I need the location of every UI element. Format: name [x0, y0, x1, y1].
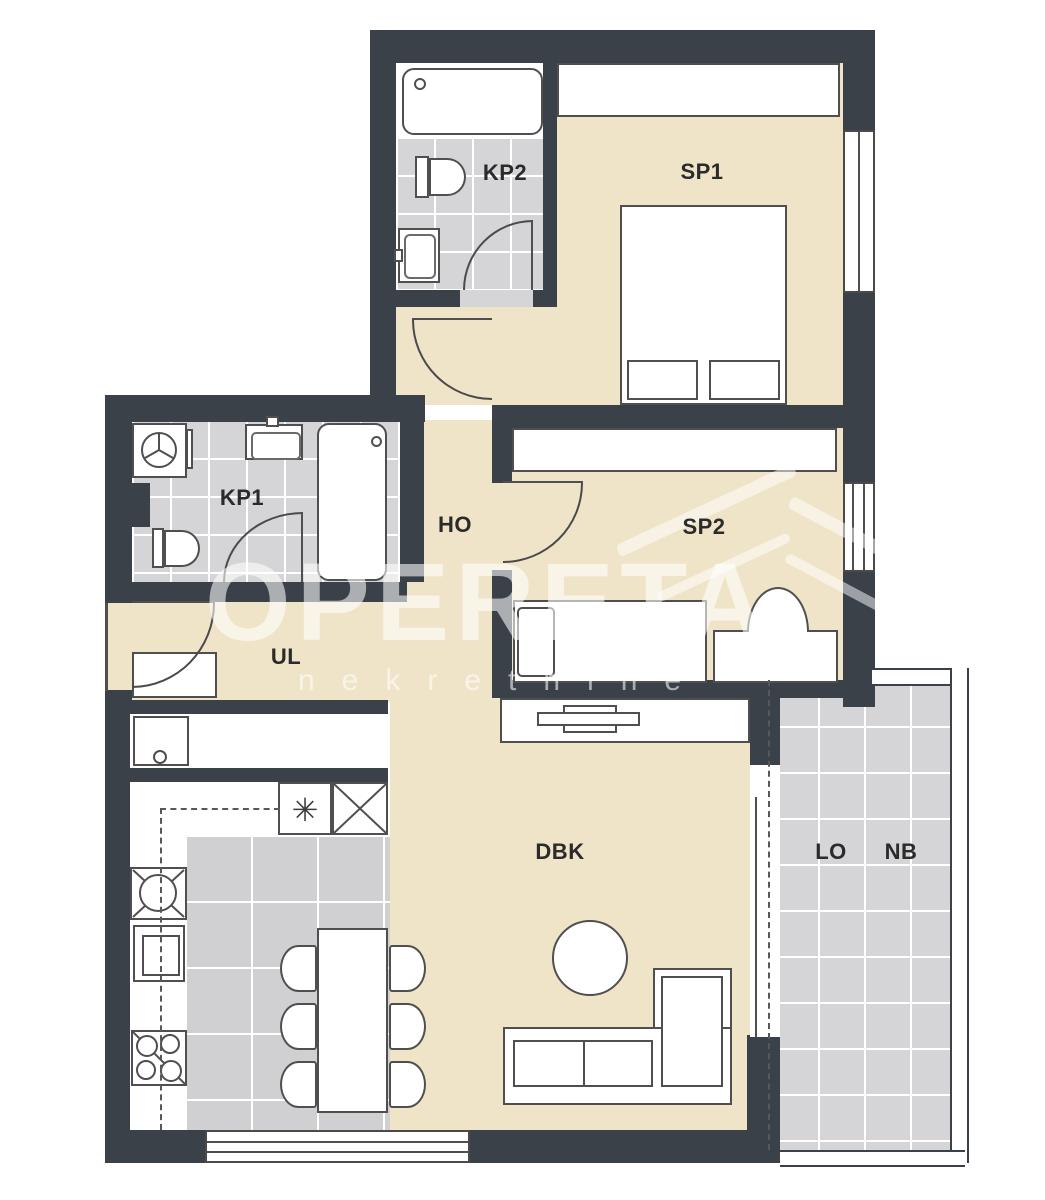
- toilet-kp1: [164, 530, 200, 567]
- burners-icon: [133, 1032, 185, 1084]
- wall-segment: [533, 290, 557, 307]
- wall-segment: [843, 420, 875, 482]
- dining-chair: [280, 1003, 317, 1050]
- oven: [133, 925, 185, 982]
- wall-segment: [843, 30, 875, 130]
- tiles-terrace: [772, 680, 950, 1150]
- window-mullion: [858, 132, 860, 291]
- coffee-table: [552, 920, 628, 996]
- window-mullion: [207, 1141, 468, 1143]
- pillow: [627, 360, 698, 400]
- door-leaf-kp2: [531, 220, 533, 290]
- kitchen-sink-unit: [130, 867, 187, 920]
- terrace-railing-bottom: [780, 1150, 965, 1167]
- floor-kp2-doorway: [460, 290, 533, 307]
- snowflake-icon: ✳: [292, 791, 319, 829]
- wall-segment: [843, 293, 875, 420]
- entrance-threshold-line: [105, 603, 108, 691]
- washer-shelf: [186, 429, 193, 469]
- dining-table: [317, 928, 388, 1113]
- wall-segment: [130, 582, 407, 602]
- door-leaf-sp2: [503, 481, 583, 483]
- wall-segment: [370, 30, 875, 63]
- drain-icon: [371, 436, 382, 447]
- window-mullion: [207, 1151, 468, 1153]
- bathtub-kp1: [317, 423, 387, 581]
- wall-balcony-jamb: [747, 1035, 780, 1163]
- wall-segment: [493, 405, 875, 428]
- dining-chair: [389, 1061, 426, 1108]
- room-label-kp2: KP2: [483, 160, 527, 186]
- toilet-tank-kp2: [415, 156, 429, 198]
- wall-segment: [396, 290, 460, 307]
- counter-outline-dashed: [160, 808, 162, 1130]
- sink-basin: [251, 432, 301, 460]
- balcony-door-leaf: [755, 797, 757, 1037]
- cooktop: [131, 1030, 187, 1086]
- washing-machine: [132, 423, 187, 478]
- room-label-ho: HO: [438, 512, 472, 538]
- floor-entrance: [107, 603, 132, 691]
- tv-icon: [537, 712, 640, 726]
- sink-kp1: [245, 424, 303, 460]
- room-label-ul: UL: [271, 644, 301, 670]
- window-sp1: [843, 130, 875, 293]
- kitchen-appliance: [133, 716, 189, 766]
- wall-segment: [105, 395, 425, 422]
- dining-chair: [389, 1003, 426, 1050]
- room-label-sp2: SP2: [682, 514, 725, 540]
- dining-chair: [280, 1061, 317, 1108]
- wall-segment: [105, 1130, 205, 1163]
- sofa-chaise-seat: [661, 976, 723, 1087]
- wall-balcony-jamb: [750, 680, 780, 765]
- wall-segment: [492, 570, 512, 683]
- wall-segment: [105, 690, 132, 1163]
- wall-segment: [105, 700, 388, 714]
- wall-segment: [470, 1130, 750, 1163]
- wardrobe-sp1: [557, 63, 840, 117]
- wall-segment: [543, 63, 557, 307]
- wall-segment: [492, 405, 512, 483]
- pillow: [709, 360, 780, 400]
- sink-kp2: [398, 228, 440, 283]
- bathtub-kp2: [402, 68, 543, 135]
- door-leaf-entrance: [132, 601, 215, 603]
- desk-sp2: [713, 630, 838, 683]
- washer-drum-icon: [134, 425, 185, 476]
- room-label-kp1: KP1: [220, 485, 264, 511]
- window-mullion: [863, 484, 865, 570]
- drain-icon: [414, 78, 426, 90]
- window-living: [205, 1130, 470, 1163]
- x-icon: [334, 784, 386, 833]
- wall-pier: [105, 483, 150, 527]
- tap-icon: [394, 249, 403, 262]
- dining-chair: [389, 945, 426, 992]
- door-leaf-sp1: [412, 318, 492, 320]
- sofa-seat: [513, 1040, 653, 1087]
- drain-icon: [153, 750, 167, 764]
- room-label-lo: LO: [815, 839, 847, 865]
- room-label-sp1: SP1: [680, 159, 723, 185]
- counter-outline-dashed: [160, 808, 280, 810]
- toilet-kp2: [429, 158, 466, 196]
- sofa-cushion-divider: [583, 1042, 585, 1085]
- sink-basin: [404, 234, 436, 279]
- door-leaf-kp1: [301, 512, 303, 582]
- dining-chair: [280, 945, 317, 992]
- tap-icon: [266, 416, 279, 427]
- pillow: [517, 607, 555, 677]
- terrace-railing-right: [950, 668, 969, 1163]
- sink-icon: [132, 869, 185, 918]
- room-label-nb: NB: [885, 839, 918, 865]
- wall-segment: [400, 420, 424, 582]
- room-label-dbk: DBK: [535, 839, 584, 865]
- appliance-xbox: [332, 782, 388, 835]
- wall-segment: [130, 768, 388, 782]
- terrace-boundary-dashed: [768, 680, 770, 1150]
- toilet-tank-kp1: [152, 528, 164, 568]
- floor-plan: ✳ KP2 SP1 KP1 HO SP2 UL DBK: [0, 0, 1045, 1200]
- wall-segment: [370, 30, 396, 420]
